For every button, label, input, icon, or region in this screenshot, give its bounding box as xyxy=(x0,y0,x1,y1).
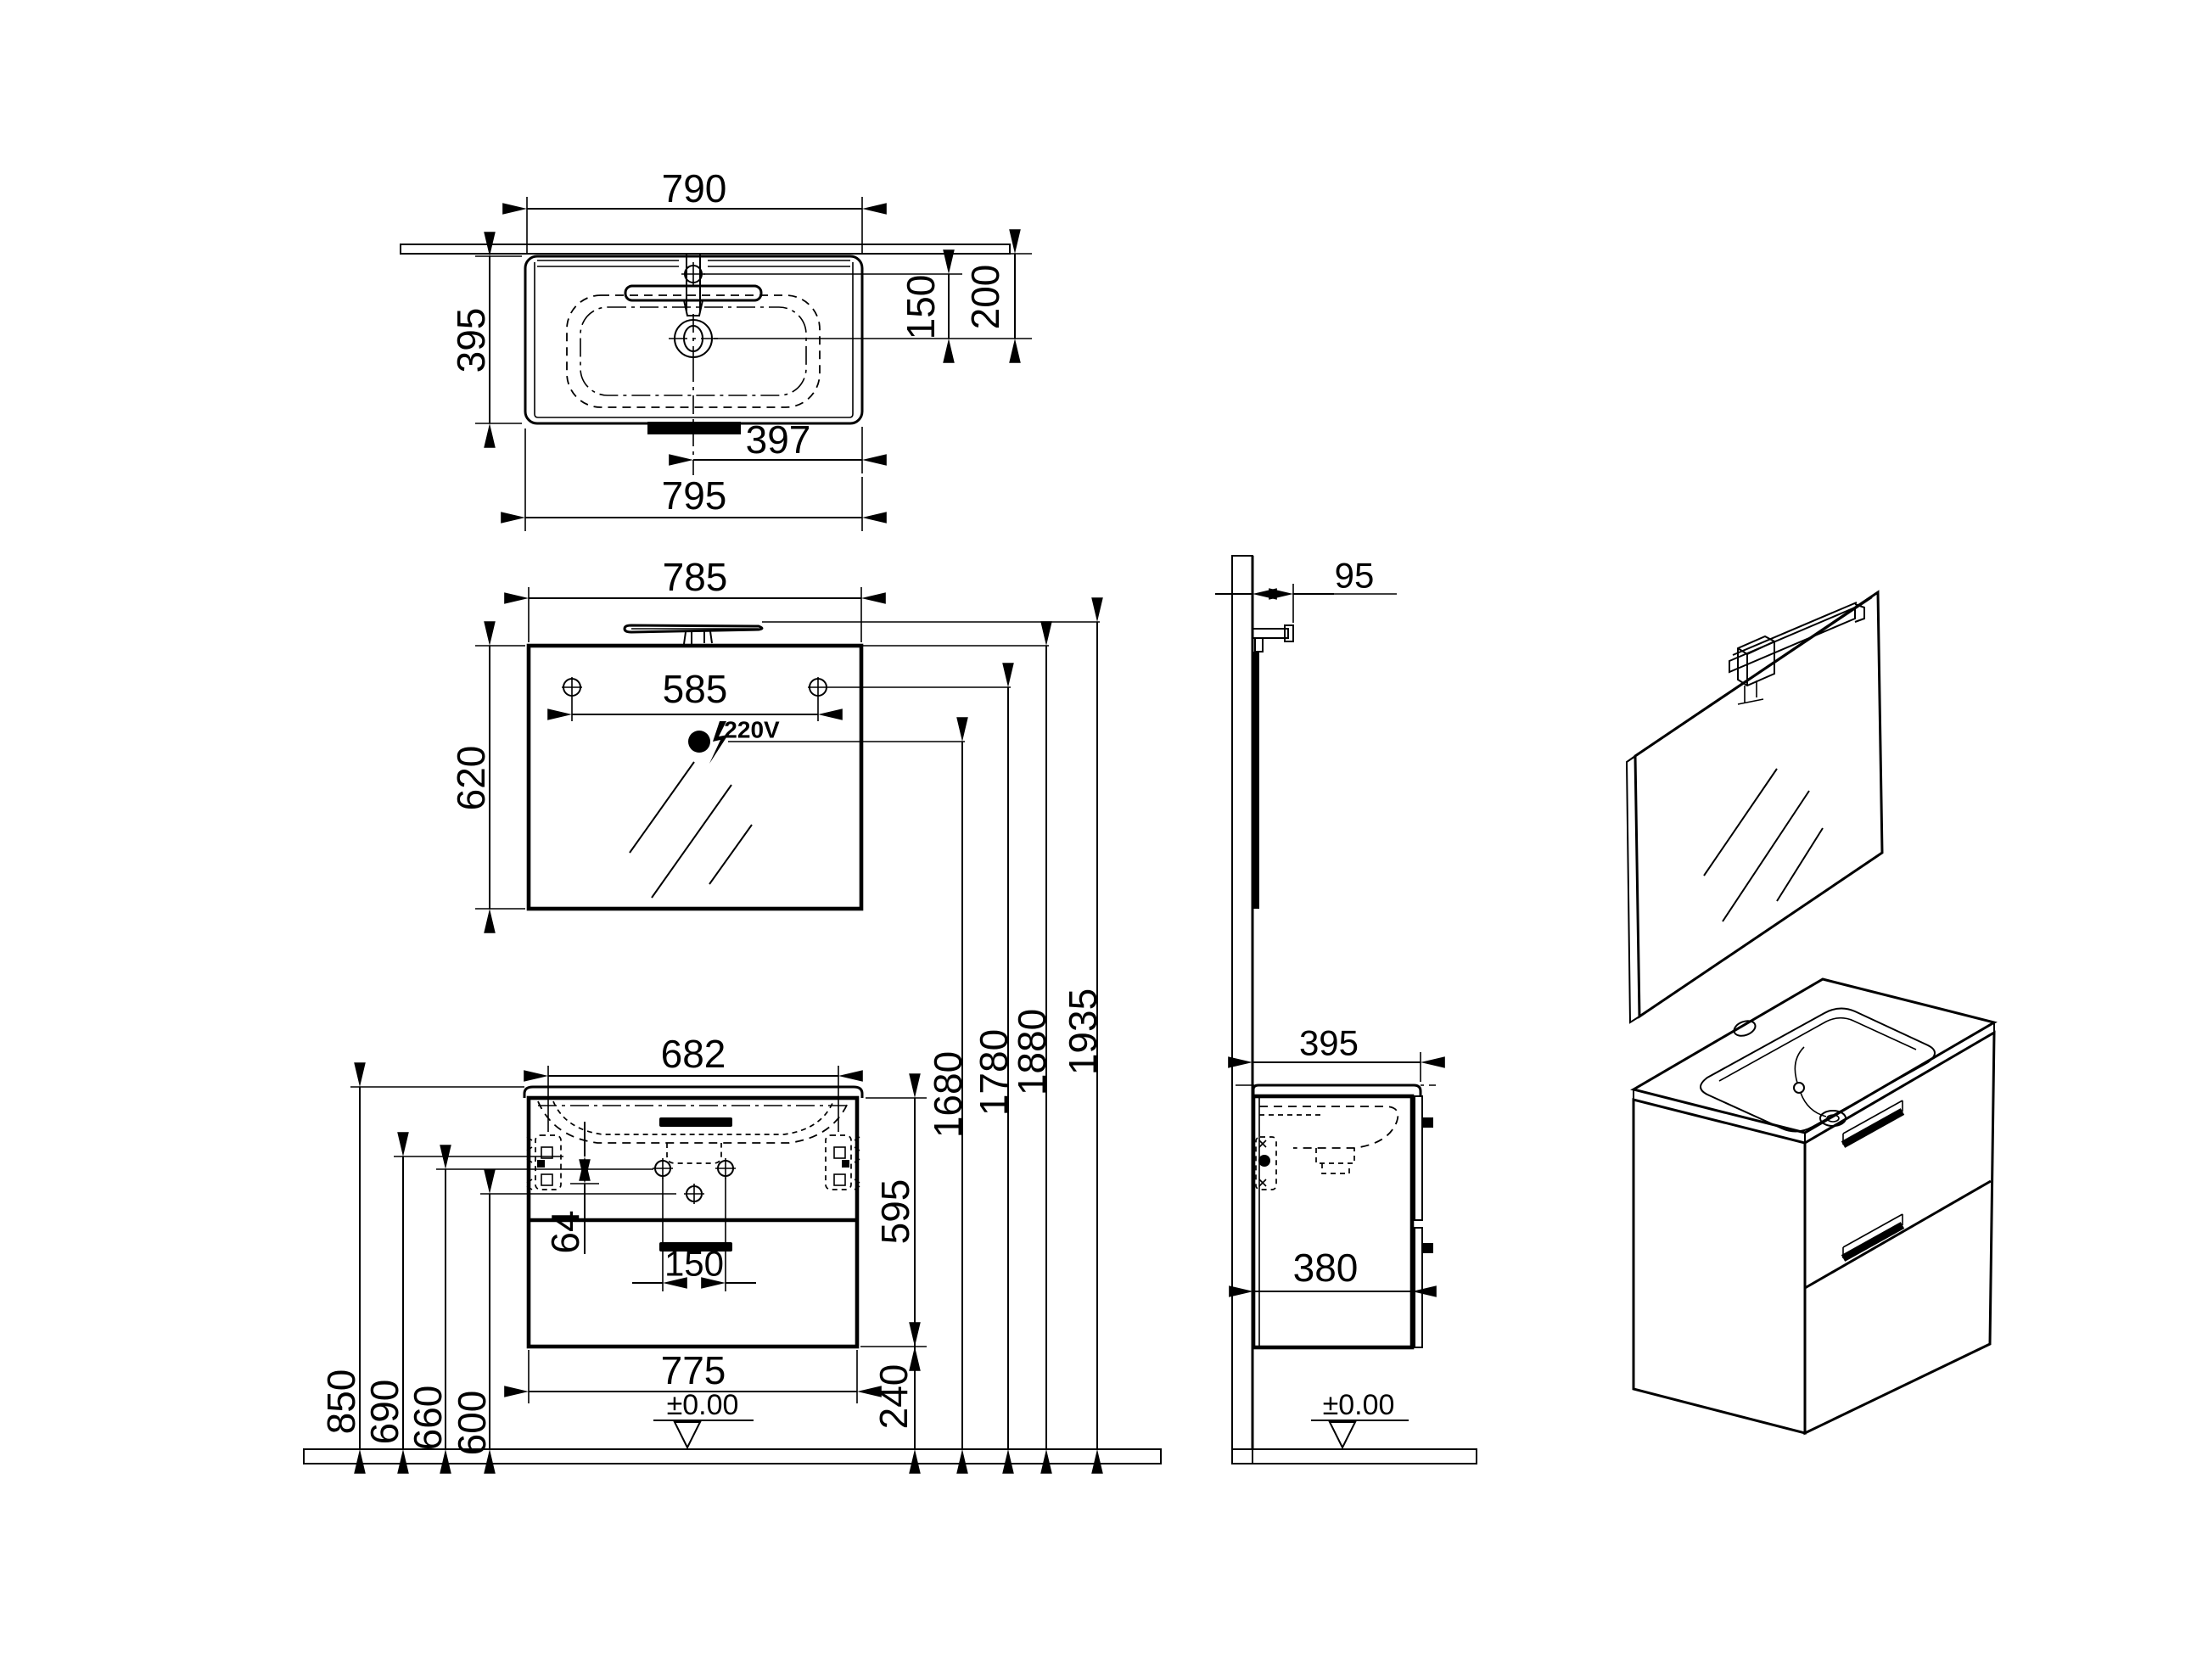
siphon-cover xyxy=(647,422,741,434)
drain-side xyxy=(1259,1115,1354,1173)
lamp-side xyxy=(1253,625,1293,652)
dim-total-depth: 395 xyxy=(1299,1023,1359,1063)
power-label: 220V xyxy=(724,717,780,743)
dim-bracket-height: 690 xyxy=(362,1380,406,1445)
handle-side-top xyxy=(1422,1117,1433,1128)
bracket-left xyxy=(527,1135,561,1190)
iso-drain xyxy=(1820,1111,1846,1126)
dim-bracket-spacing: 682 xyxy=(661,1032,726,1076)
top-view: 790 395 150 200 397 795 xyxy=(401,166,1032,531)
iso-glass-reflection xyxy=(1704,769,1823,921)
datum-label-side: ±0.00 xyxy=(1323,1389,1395,1421)
handle-side-bottom xyxy=(1422,1243,1433,1253)
height-dimensions: 1680 1780 1880 1935 xyxy=(926,622,1105,1449)
dim-faucet-drain: 150 xyxy=(899,275,943,340)
bracket-right xyxy=(826,1135,860,1190)
iso-handles xyxy=(1843,1100,1903,1258)
iso-worktop xyxy=(1634,979,1994,1133)
dim-handle-width: 150 xyxy=(664,1244,724,1284)
dim-bracket-screw-gap: 64 xyxy=(543,1210,587,1253)
iso-lamp xyxy=(1729,602,1864,704)
mirror-front-view: 220V 785 585 620 xyxy=(449,555,1100,909)
mirror-screw-left xyxy=(562,677,582,697)
technical-drawing: 790 395 150 200 397 795 xyxy=(0,0,2208,1680)
mirror-side-profile xyxy=(1253,652,1259,909)
dim-mirror-height: 620 xyxy=(449,746,493,811)
iso-cabinet xyxy=(1634,979,1994,1433)
floor-datum-front: ±0.00 xyxy=(653,1389,754,1448)
dim-lamp-top-height: 1935 xyxy=(1061,988,1105,1075)
wall-section-hatch xyxy=(401,244,1010,254)
dim-wall-drain: 200 xyxy=(963,265,1007,330)
iso-left-panel xyxy=(1634,1100,1805,1433)
lamp-front xyxy=(625,625,762,646)
handle-top-drawer xyxy=(659,1117,732,1127)
floor-datum-side: ±0.00 xyxy=(1311,1389,1409,1448)
dim-mirror-top-height: 1880 xyxy=(1010,1009,1054,1095)
bowl-profile-side xyxy=(1259,1106,1398,1148)
dim-screw-spacing: 585 xyxy=(663,667,728,711)
datum-label-front: ±0.00 xyxy=(667,1389,739,1421)
dim-outlet-height: 1680 xyxy=(926,1051,970,1138)
drawing-page: 790 395 150 200 397 795 xyxy=(0,0,2208,1680)
glass-reflection-lines xyxy=(630,762,752,898)
dim-body-height: 595 xyxy=(873,1179,917,1245)
dim-drain-edge: 397 xyxy=(746,417,811,462)
floor-hatch-side xyxy=(1232,1449,1477,1464)
dim-worktop-height: 850 xyxy=(319,1369,363,1435)
iso-plug xyxy=(1794,1083,1804,1093)
left-leaders xyxy=(350,1087,676,1194)
outlet-dot xyxy=(688,731,710,753)
mirror-screw-right xyxy=(808,677,828,697)
cabinet-front-view: 682 64 150 595 240 775 850 690 660 600 xyxy=(304,1032,1161,1464)
dim-depth: 395 xyxy=(449,308,493,373)
drawer-front-bottom-side xyxy=(1415,1228,1422,1347)
drain-symbol xyxy=(669,314,718,363)
dim-total-width: 795 xyxy=(662,473,727,518)
side-view: 95 395 380 ±0.00 xyxy=(1215,556,1477,1464)
drawer-front-top-side xyxy=(1415,1096,1422,1220)
iso-mirror xyxy=(1627,592,1882,1022)
dim-lower-hole-height: 600 xyxy=(450,1391,494,1456)
dim-floor-clearance: 240 xyxy=(871,1364,916,1430)
iso-drawer-divide xyxy=(1805,1181,1991,1288)
dim-lamp-depth: 95 xyxy=(1335,556,1375,596)
dim-holes-height: 660 xyxy=(406,1386,450,1451)
wall-side-hatch xyxy=(1232,556,1253,1464)
height-leaders xyxy=(728,622,1100,742)
iso-worktop-edge xyxy=(1634,1022,1994,1143)
power-symbol: 220V xyxy=(688,717,780,764)
iso-mirror-face xyxy=(1635,592,1882,1016)
dim-mirror-width: 785 xyxy=(663,555,728,599)
dim-body-depth: 380 xyxy=(1293,1246,1359,1290)
dim-body-width: 775 xyxy=(661,1348,726,1392)
floor-hatch-main xyxy=(304,1449,1161,1464)
handle-screw-holes xyxy=(653,1158,736,1204)
drain-front xyxy=(667,1143,721,1163)
dim-top-width: 790 xyxy=(662,166,727,210)
